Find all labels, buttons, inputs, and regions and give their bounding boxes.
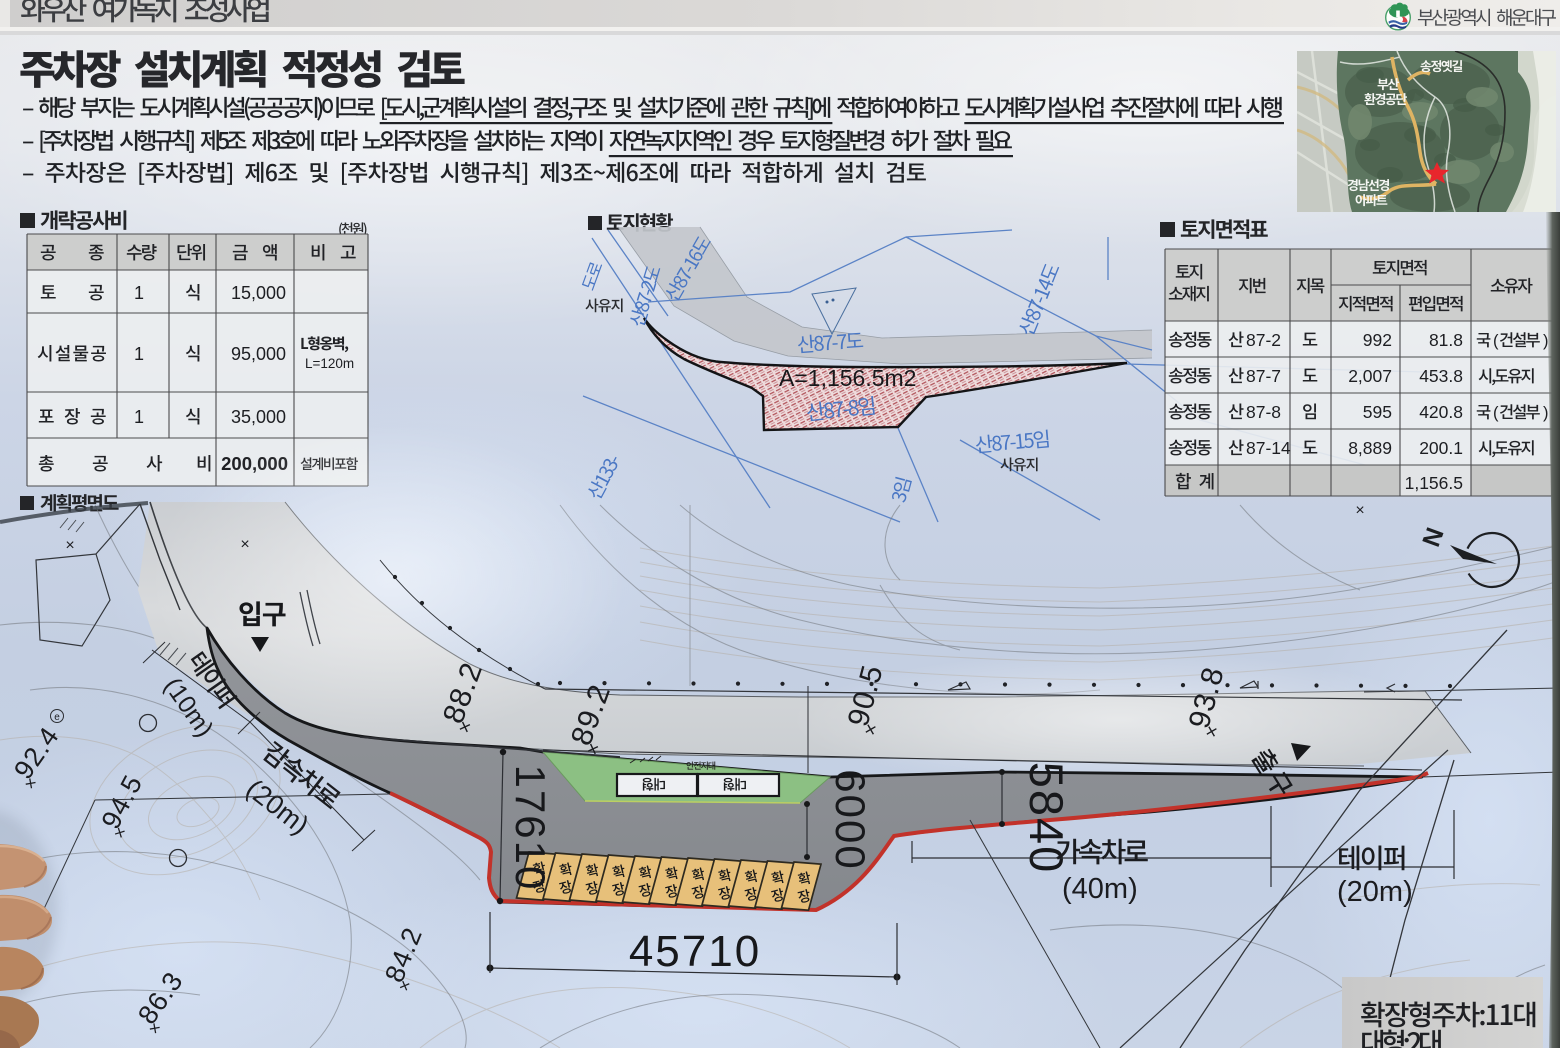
svg-text:(: ( [1493,332,1499,350]
svg-text:(20m): (20m) [1337,876,1413,908]
svg-text:200.1: 200.1 [1419,438,1463,458]
svg-text:992: 992 [1363,330,1392,350]
svg-text:95,000: 95,000 [231,344,286,364]
svg-text:595: 595 [1363,402,1392,422]
svg-text:): ) [1543,332,1549,350]
svg-text:87-2: 87-2 [1246,330,1281,350]
svg-text:420.8: 420.8 [1419,402,1463,422]
svg-text:): ) [1543,404,1549,422]
svg-text:e: e [54,712,60,723]
svg-text:(40m): (40m) [1062,873,1138,905]
svg-text:×: × [1355,502,1364,519]
svg-text:453.8: 453.8 [1419,366,1463,386]
svg-text:L=120m: L=120m [305,356,354,371]
svg-text:81.8: 81.8 [1429,330,1463,350]
svg-text:6000: 6000 [827,769,874,870]
svg-text:5840: 5840 [1020,762,1073,875]
svg-text:87-14: 87-14 [1246,438,1291,458]
svg-text:8,889: 8,889 [1348,438,1392,458]
svg-text:1,156.5: 1,156.5 [1405,473,1463,493]
svg-text:35,000: 35,000 [231,407,286,427]
svg-text:1: 1 [134,283,144,303]
svg-text:A=1,156.5m2: A=1,156.5m2 [779,365,916,391]
svg-text:1: 1 [134,344,144,364]
svg-text:87-7: 87-7 [1246,366,1281,386]
svg-text:2,007: 2,007 [1348,366,1392,386]
svg-text:15,000: 15,000 [231,283,286,303]
svg-text:(: ( [1493,404,1499,422]
svg-text:×: × [65,537,74,554]
svg-text:45710: 45710 [629,927,761,976]
svg-text:17610: 17610 [507,765,554,892]
svg-text:1: 1 [134,407,144,427]
svg-text:×: × [240,536,249,553]
svg-text:87-8: 87-8 [1246,402,1281,422]
